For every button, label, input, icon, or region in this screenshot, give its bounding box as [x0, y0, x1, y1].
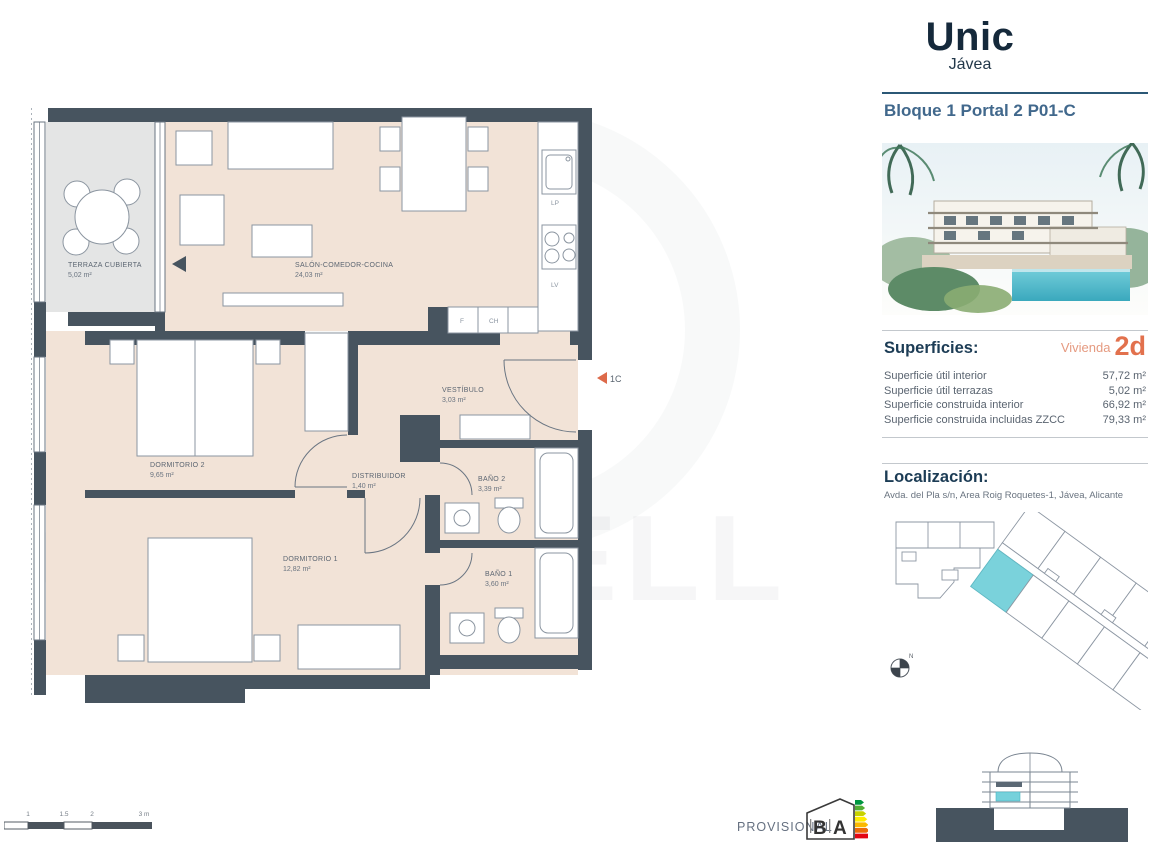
- project-title: Unic: [882, 16, 1058, 58]
- surface-value: 66,92 m²: [1103, 398, 1146, 413]
- entrance-label: 1C: [610, 374, 622, 384]
- highlighted-floor: [996, 792, 1020, 801]
- project-subtitle: Jávea: [882, 56, 1058, 74]
- room-area-distribuidor: 1,40 m²: [352, 483, 376, 490]
- surface-label: Superficie construida incluidas ZZCC: [884, 413, 1103, 428]
- unit-reference: Bloque 1 Portal 2 P01-C: [884, 101, 1076, 121]
- surface-value: 79,33 m²: [1103, 413, 1146, 428]
- scale-bar: 1 1.5 2 3 m: [4, 806, 174, 842]
- kitchen-label-lv: LV: [551, 282, 559, 289]
- room-area-dormitorio-2: 9,65 m²: [150, 472, 174, 479]
- room-label-bano-2: BAÑO 2: [478, 474, 505, 483]
- localizacion-title: Localización:: [884, 468, 989, 487]
- divider: [882, 437, 1148, 438]
- room-label-bano-1: BAÑO 1: [485, 569, 512, 578]
- scale-label-1-5: 1.5: [59, 811, 68, 818]
- entrance-marker: 1C: [597, 372, 622, 384]
- room-label-vestibulo: VESTÍBULO: [442, 385, 484, 394]
- vivienda-label: Vivienda: [1061, 340, 1111, 358]
- floor-plan: TERRAZA CUBIERTA 5,02 m² SALÓN-COMEDOR-C…: [30, 95, 640, 720]
- room-label-distribuidor: DISTRIBUIDOR: [352, 473, 406, 480]
- scale-label-2: 2: [90, 811, 94, 818]
- scale-labels: 1 1.5 2 3 m: [26, 811, 149, 818]
- building-elevation: [934, 742, 1154, 846]
- kitchen-label-ch: CH: [489, 318, 499, 325]
- scale-label-1: 1: [26, 811, 30, 818]
- room-label-salon: SALÓN-COMEDOR-COCINA: [295, 260, 393, 269]
- energy-letter-b: B: [813, 818, 827, 839]
- surface-label: Superficie útil terrazas: [884, 384, 1109, 399]
- divider: [882, 330, 1148, 331]
- vivienda-badge: Vivienda 2d: [1061, 334, 1146, 358]
- table-row: Superficie útil interior 57,72 m²: [884, 369, 1146, 384]
- room-area-bano-1: 3,60 m²: [485, 581, 509, 588]
- scale-label-3m: 3 m: [139, 811, 150, 818]
- kitchen-label-f: F: [460, 318, 464, 325]
- table-row: Superficie útil terrazas 5,02 m²: [884, 384, 1146, 399]
- energy-certificate-icon: B A: [800, 793, 868, 849]
- brand-block: Unic Jávea: [882, 16, 1058, 74]
- room-label-dormitorio-2: DORMITORIO 2: [150, 462, 205, 469]
- energy-scale-bars: [855, 800, 868, 838]
- entrance-arrow-icon: [597, 372, 607, 384]
- surface-label: Superficie útil interior: [884, 369, 1103, 384]
- compass-icon: N: [891, 654, 913, 677]
- surface-value: 57,72 m²: [1103, 369, 1146, 384]
- divider: [882, 463, 1148, 464]
- building-render: [882, 143, 1148, 315]
- address-text: Avda. del Pla s/n, Area Roig Roquetes-1,…: [884, 490, 1148, 501]
- table-row: Superficie construida incluidas ZZCC 79,…: [884, 413, 1146, 428]
- surface-label: Superficie construida interior: [884, 398, 1103, 413]
- room-label-dormitorio-1: DORMITORIO 1: [283, 556, 338, 563]
- header-rule: [882, 92, 1148, 94]
- superficies-title: Superficies:: [884, 339, 978, 358]
- superficies-header: Superficies: Vivienda 2d: [884, 334, 1146, 358]
- info-panel: Unic Jávea Bloque 1 Portal 2 P01-C: [882, 0, 1148, 860]
- superficies-table: Superficie útil interior 57,72 m² Superf…: [884, 369, 1146, 427]
- room-area-dormitorio-1: 12,82 m²: [283, 566, 311, 573]
- room-label-terraza: TERRAZA CUBIERTA: [68, 262, 142, 269]
- vivienda-value: 2d: [1114, 334, 1146, 358]
- site-buildings: [896, 512, 1148, 710]
- room-area-salon: 24,03 m²: [295, 272, 323, 279]
- energy-letter-a: A: [833, 818, 847, 839]
- room-area-vestibulo: 3,03 m²: [442, 397, 466, 404]
- compass-north-label: N: [909, 654, 913, 660]
- table-row: Superficie construida interior 66,92 m²: [884, 398, 1146, 413]
- kitchen-label-lp: LP: [551, 200, 559, 207]
- room-area-terraza: 5,02 m²: [68, 272, 92, 279]
- surface-value: 5,02 m²: [1109, 384, 1146, 399]
- plan-sheet-page: COLDWELL: [0, 0, 1159, 860]
- scale-segments: [4, 822, 152, 829]
- site-plan: N: [882, 512, 1148, 710]
- room-area-bano-2: 3,39 m²: [478, 486, 502, 493]
